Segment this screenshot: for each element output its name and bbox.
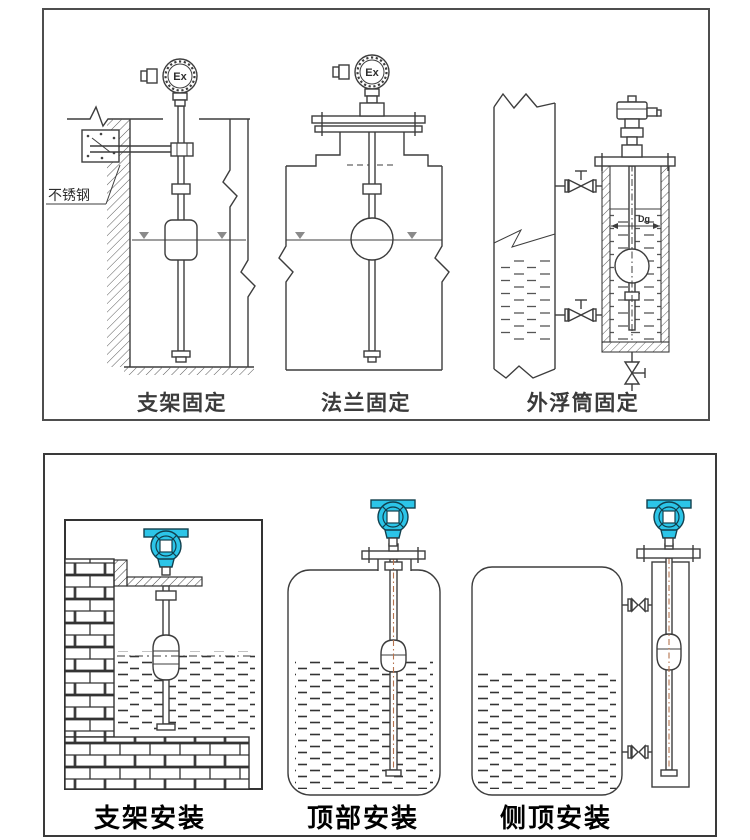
transmitter-head	[617, 96, 661, 157]
neck	[385, 530, 401, 538]
tank-left-wall	[279, 166, 293, 370]
liquid	[499, 257, 551, 341]
flange-fixing-drawing: Ex	[279, 55, 449, 370]
connection-nut	[621, 128, 643, 137]
nozzle-shoulder-left	[286, 131, 340, 166]
caption-top-install: 顶部安装	[307, 803, 419, 833]
ex-label: Ex	[173, 71, 187, 83]
float-ball	[351, 218, 393, 260]
top-install-drawing	[288, 500, 440, 795]
chamber-left-wall	[602, 166, 610, 342]
side-top-install-drawing	[472, 500, 700, 795]
tank-right-wall-inner	[223, 119, 237, 367]
housing	[617, 102, 647, 119]
ex-transmitter-head: Ex	[333, 55, 389, 116]
display-window	[387, 511, 399, 523]
chamber-bottom	[602, 342, 669, 352]
chamber-flange	[595, 157, 675, 166]
dg-label: Dg	[638, 214, 650, 224]
cable-entry	[647, 108, 657, 116]
transmitter-head	[144, 529, 188, 575]
caption-bracket-fixing: 支架固定	[137, 391, 227, 415]
drain-valve	[625, 352, 645, 391]
rod-end-stop	[157, 724, 175, 730]
stainless-steel-label: 不锈钢	[48, 187, 90, 203]
fixing-methods-panel: Ex 不锈钢 支架固定	[42, 8, 710, 421]
tank-right-wall-outer	[241, 119, 255, 367]
caption-side-top-install: 侧顶安装	[500, 803, 612, 833]
bracket-shelf	[127, 577, 202, 586]
liquid	[117, 651, 255, 733]
brick-wall-base	[65, 737, 249, 789]
chamber-right-wall	[661, 166, 669, 342]
liquid	[295, 661, 433, 789]
rod-end-stop	[386, 770, 401, 776]
caption-external-chamber-fixing: 外浮筒固定	[527, 391, 640, 415]
neck	[158, 559, 174, 567]
upper-isolation-valve	[555, 171, 602, 192]
bracket-upright	[114, 560, 127, 586]
level-mark-icon	[407, 232, 417, 239]
rod-coupling	[172, 184, 190, 194]
cable-entry	[147, 69, 157, 83]
neck	[661, 530, 677, 538]
installation-types-canvas: 支架安装	[45, 455, 715, 835]
level-mark-icon	[295, 232, 305, 239]
float-level-transmitter-installation-diagrams: Ex 不锈钢 支架固定	[0, 0, 750, 840]
external-chamber-fixing-drawing: Dg	[494, 94, 675, 391]
rod-end-stop	[661, 770, 677, 776]
brick-wall-column	[65, 559, 114, 737]
transmitter-head	[371, 500, 415, 546]
rod-lower	[163, 680, 169, 724]
process-tank	[494, 94, 555, 378]
float-chamber: Dg	[595, 150, 675, 352]
float	[153, 635, 179, 680]
lower-connection-valve	[622, 746, 652, 758]
ex-transmitter-head: Ex	[141, 59, 197, 106]
ground-hatching	[124, 367, 254, 375]
connection-nut	[360, 103, 384, 116]
upper-connection-valve	[622, 599, 652, 611]
bracket-install-drawing	[65, 520, 262, 789]
nozzle-shoulder-right	[404, 131, 442, 166]
rod-coupling	[363, 184, 381, 194]
installation-types-panel: 支架安装	[43, 453, 717, 837]
caption-bracket-install: 支架安装	[94, 803, 206, 833]
display-window	[160, 540, 172, 552]
transmitter-head	[647, 500, 691, 546]
caption-flange-fixing: 法兰固定	[321, 391, 411, 415]
rod-end-stop	[172, 351, 190, 357]
display-window	[663, 511, 675, 523]
rod-clamp	[171, 143, 193, 156]
ex-label: Ex	[365, 67, 379, 79]
lower-isolation-valve	[555, 300, 602, 321]
rod-end-stop	[364, 351, 380, 357]
cable-entry	[339, 65, 349, 79]
level-mark-icon	[217, 232, 227, 239]
break-symbol	[494, 230, 555, 247]
tank-right-wall	[435, 166, 449, 370]
level-mark-icon	[139, 232, 149, 239]
bracket-fixing-drawing: Ex 不锈钢	[46, 59, 255, 375]
liquid	[478, 671, 616, 789]
rod-coupling	[156, 591, 176, 600]
fixing-methods-canvas: Ex 不锈钢 支架固定	[44, 10, 708, 419]
